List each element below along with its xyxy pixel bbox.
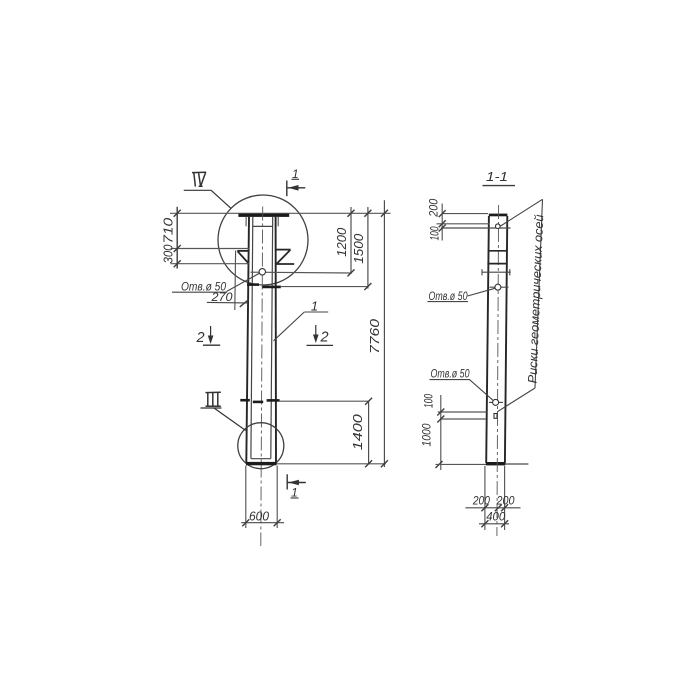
svg-text:Отв.ø 50: Отв.ø 50 — [429, 291, 468, 303]
svg-text:1: 1 — [311, 298, 318, 313]
svg-text:7760: 7760 — [368, 319, 382, 354]
svg-text:1200: 1200 — [335, 228, 349, 257]
svg-text:200: 200 — [472, 495, 490, 507]
svg-text:1: 1 — [291, 486, 298, 500]
svg-text:200: 200 — [496, 495, 516, 507]
svg-text:2: 2 — [319, 330, 328, 346]
svg-text:200: 200 — [429, 198, 441, 218]
svg-text:100: 100 — [430, 226, 442, 240]
svg-text:400: 400 — [486, 511, 506, 523]
svg-text:1000: 1000 — [422, 423, 434, 447]
svg-text:300: 300 — [162, 244, 176, 263]
svg-text:Отв.ø 50: Отв.ø 50 — [431, 369, 470, 381]
svg-text:1500: 1500 — [352, 234, 366, 264]
svg-text:100: 100 — [424, 394, 436, 408]
svg-text:1-1: 1-1 — [486, 169, 508, 184]
svg-text:710: 710 — [162, 218, 176, 244]
svg-text:2: 2 — [195, 330, 204, 346]
svg-text:600: 600 — [249, 510, 269, 524]
svg-text:1400: 1400 — [351, 414, 365, 450]
